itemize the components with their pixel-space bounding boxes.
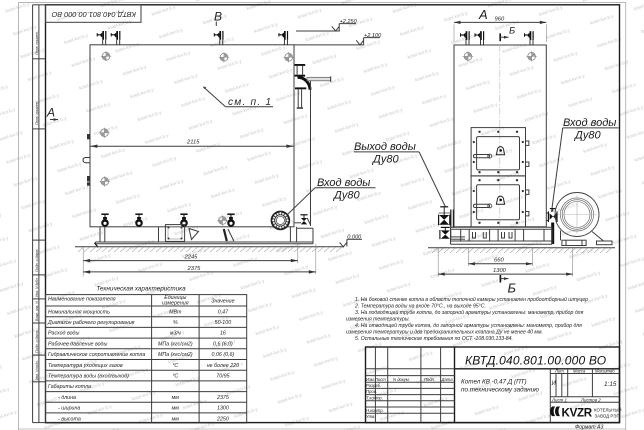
svg-text:Наименование показателя: Наименование показателя xyxy=(48,297,116,303)
svg-text:ЗАВОД РЭП: ЗАВОД РЭП xyxy=(595,414,620,419)
svg-text:50-100: 50-100 xyxy=(215,320,232,326)
svg-text:Т.контр.: Т.контр. xyxy=(366,395,383,400)
svg-text:2245: 2245 xyxy=(184,255,199,261)
svg-text:Вход воды: Вход воды xyxy=(317,177,370,189)
svg-text:измерения температуры и два пр: измерения температуры и два предохраните… xyxy=(346,329,543,335)
svg-text:- длина: - длина xyxy=(58,395,76,401)
svg-text:2. Температура воды на входе: 2. Температура воды на входе 70°С., на в… xyxy=(354,303,486,309)
svg-text:Подп. и дата: Подп. и дата xyxy=(35,250,39,273)
svg-text:Инв. N дубл.: Инв. N дубл. xyxy=(35,277,39,297)
svg-text:Перв. примен.: Перв. примен. xyxy=(35,101,39,125)
svg-text:Лист 1: Лист 1 xyxy=(551,397,568,402)
svg-text:Дата: Дата xyxy=(441,377,454,382)
svg-text:И: И xyxy=(552,381,557,387)
svg-text:KVZR: KVZR xyxy=(562,407,593,420)
svg-text:Листов 2: Листов 2 xyxy=(580,397,601,402)
svg-text:0,47: 0,47 xyxy=(218,309,229,315)
svg-text:Рабочее давление воды: Рабочее давление воды xyxy=(48,341,107,347)
svg-text:N докум.: N докум. xyxy=(393,377,410,382)
svg-text:Подп. и дата: Подп. и дата xyxy=(35,331,39,354)
svg-text:МПа (кгс/см2): МПа (кгс/см2) xyxy=(158,352,193,358)
svg-text:0,6 (6,0): 0,6 (6,0) xyxy=(213,341,233,347)
svg-text:%: % xyxy=(173,320,178,326)
svg-text:Изм Лист: Изм Лист xyxy=(366,377,386,382)
svg-text:Н.контр.: Н.контр. xyxy=(366,408,384,413)
svg-text:Масштаб: Масштаб xyxy=(595,368,615,373)
svg-text:°С: °С xyxy=(172,374,178,380)
svg-text:В: В xyxy=(214,10,222,24)
svg-text:Ду80: Ду80 xyxy=(332,190,360,202)
svg-text:МПа (кгс/см2): МПа (кгс/см2) xyxy=(158,341,193,347)
svg-text:Техническая характеристика: Техническая характеристика xyxy=(96,285,186,292)
svg-text:Формат А3: Формат А3 xyxy=(575,424,603,430)
svg-text:Номинальная мощность: Номинальная мощность xyxy=(48,309,110,315)
svg-text:Ду80: Ду80 xyxy=(573,130,601,142)
svg-text:А: А xyxy=(478,7,488,22)
svg-text:1300: 1300 xyxy=(493,268,507,274)
svg-text:Лит.: Лит. xyxy=(554,368,565,373)
svg-text:м3/ч: м3/ч xyxy=(170,331,181,337)
svg-text:0.000: 0.000 xyxy=(347,234,362,240)
svg-text:1300: 1300 xyxy=(217,406,229,412)
svg-text:Расход воды: Расход воды xyxy=(48,331,79,337)
svg-text:мм: мм xyxy=(172,406,180,412)
svg-text:Разраб.: Разраб. xyxy=(366,383,381,388)
svg-text:не более 220: не более 220 xyxy=(207,363,239,369)
svg-text:А: А xyxy=(46,106,55,120)
svg-text:Пров.: Пров. xyxy=(366,389,377,394)
svg-text:2375: 2375 xyxy=(187,266,202,272)
svg-text:Температура воды (вход/выход): Температура воды (вход/выход) xyxy=(48,374,129,380)
svg-text:Подп.: Подп. xyxy=(424,377,435,382)
svg-text:измерения температуры.: измерения температуры. xyxy=(346,316,410,322)
svg-text:- высота: - высота xyxy=(58,416,81,422)
svg-text:2375: 2375 xyxy=(216,395,229,401)
svg-text:1:15: 1:15 xyxy=(604,381,617,388)
svg-text:4. На отводящей трубе котла,: 4. На отводящей трубе котла, до запорной… xyxy=(355,322,582,329)
svg-text:см. п. 1: см. п. 1 xyxy=(228,97,272,108)
svg-text:+2.100: +2.100 xyxy=(364,33,382,39)
svg-text:- ширина: - ширина xyxy=(58,406,80,412)
svg-text:Диапазон рабочего регулировани: Диапазон рабочего регулирования xyxy=(47,320,135,326)
svg-text:960: 960 xyxy=(495,17,505,23)
svg-text:0,06 (0,6): 0,06 (0,6) xyxy=(212,352,235,358)
svg-text:Перв. примен.: Перв. примен. xyxy=(35,31,39,55)
svg-text:1. На боковой стенке котла в: 1. На боковой стенке котла в области топ… xyxy=(355,296,588,303)
svg-text:Масса: Масса xyxy=(573,368,586,373)
svg-text:°С: °С xyxy=(172,363,178,369)
svg-text:КВТД.040.801.00.000 ВО: КВТД.040.801.00.000 ВО xyxy=(465,354,606,368)
svg-text:измерения: измерения xyxy=(162,301,189,307)
svg-text:+2.250: +2.250 xyxy=(340,19,358,25)
svg-text:МВт: МВт xyxy=(169,309,182,315)
svg-text:Б: Б xyxy=(508,281,517,296)
svg-text:Ду80: Ду80 xyxy=(371,154,399,166)
svg-text:Температура уходящих газов: Температура уходящих газов xyxy=(48,363,123,369)
svg-text:Котел КВ -0,47 Д (ПТ): Котел КВ -0,47 Д (ПТ) xyxy=(461,378,527,385)
svg-text:мм: мм xyxy=(172,416,180,422)
svg-text:КВТД.040.801.00.000 ВО: КВТД.040.801.00.000 ВО xyxy=(51,10,136,19)
svg-text:КОТЕЛЬНЫЙ: КОТЕЛЬНЫЙ xyxy=(594,407,622,412)
svg-text:2250: 2250 xyxy=(216,416,229,422)
svg-text:Вход воды: Вход воды xyxy=(563,117,616,129)
svg-text:Инв. N подл.: Инв. N подл. xyxy=(35,360,39,380)
svg-text:Утв.: Утв. xyxy=(366,414,376,419)
svg-text:Габариты котла: Габариты котла xyxy=(48,384,91,390)
svg-text:Гидравлическое сопротивление к: Гидравлическое сопротивление котла xyxy=(48,352,145,358)
svg-text:3. На подводящей трубе котла,: 3. На подводящей трубе котла, до запорно… xyxy=(355,309,584,316)
svg-text:Б: Б xyxy=(509,25,515,36)
svg-text:мм: мм xyxy=(172,395,180,401)
svg-text:Значение: Значение xyxy=(211,299,234,305)
svg-text:70/95: 70/95 xyxy=(216,374,229,380)
svg-text:2115: 2115 xyxy=(186,140,200,146)
svg-text:16: 16 xyxy=(220,331,226,337)
svg-text:по техническому заданию: по техническому заданию xyxy=(461,386,539,394)
svg-text:Взам. инв. N: Взам. инв. N xyxy=(35,301,39,321)
svg-text:5. Остальные технические треб: 5. Остальные технические требования по О… xyxy=(355,336,513,342)
svg-text:660: 660 xyxy=(494,258,504,264)
